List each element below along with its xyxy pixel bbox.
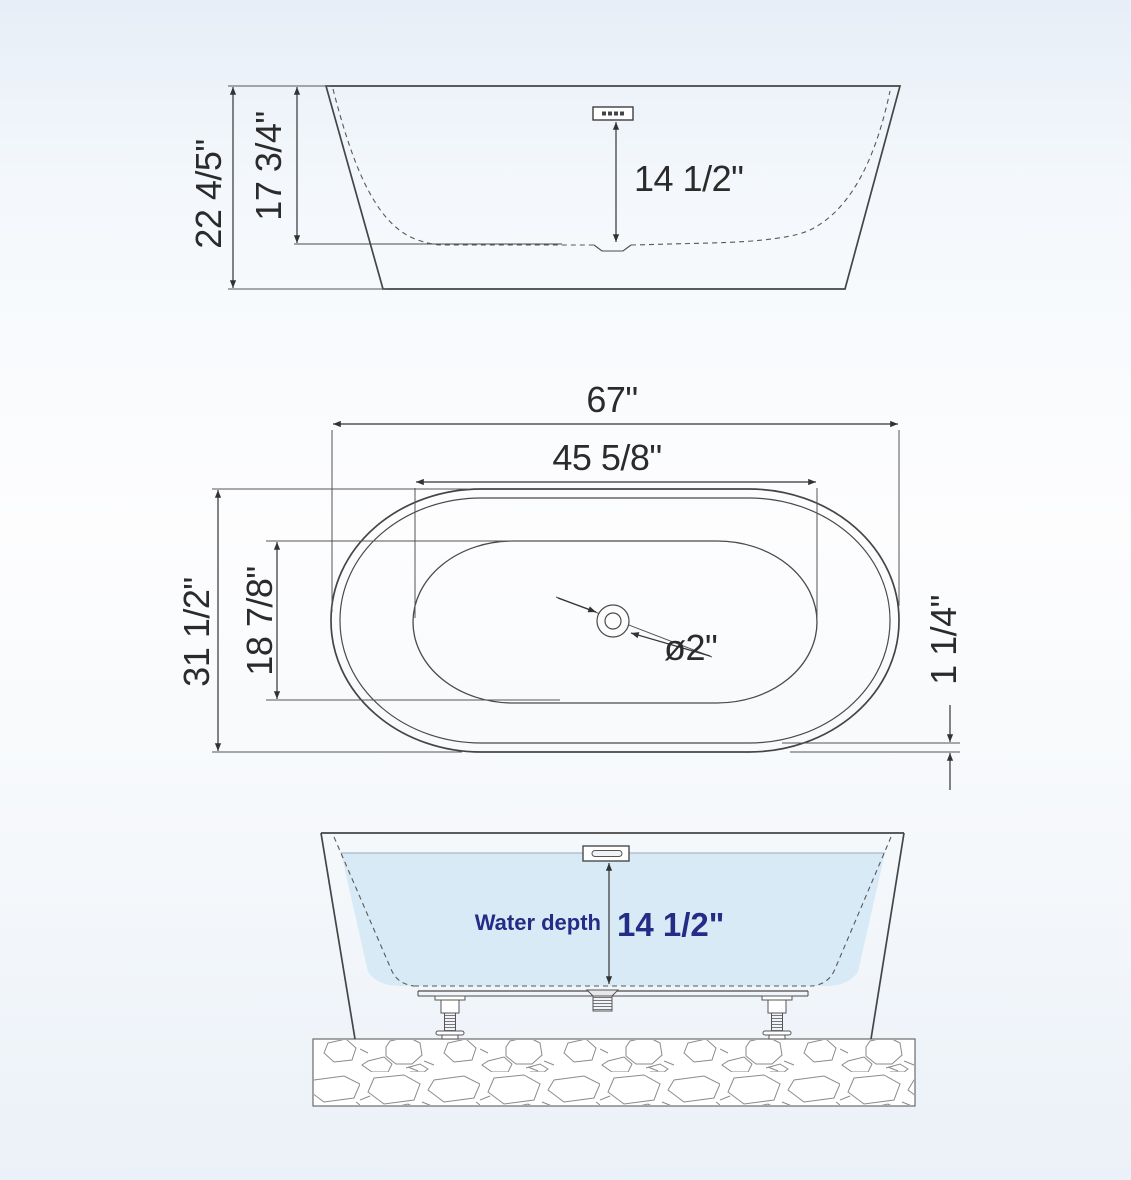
overflow-fitting-icon	[593, 107, 633, 120]
dim-label-interior-depth: 17 3/4"	[248, 111, 289, 220]
overflow-slot-icon	[592, 851, 622, 857]
technical-drawing-canvas: 22 4/5" 17 3/4" 14 1/2" ø2" 67" 45 5/8" …	[0, 0, 1131, 1180]
dim-label-drain-diameter: ø2"	[664, 627, 717, 668]
water-depth-label: Water depth	[475, 910, 601, 935]
bathtub-dimension-drawing: 22 4/5" 17 3/4" 14 1/2" ø2" 67" 45 5/8" …	[0, 0, 1131, 1180]
dim-label-rim-thickness: 1 1/4"	[923, 595, 964, 685]
floor-mosaic-pattern	[314, 1040, 914, 1105]
dim-label-overall-height: 22 4/5"	[188, 139, 229, 248]
drain-leader-arrow	[558, 598, 596, 612]
plan-view: ø2" 67" 45 5/8" 31 1/2" 18 7/8" 1 1/4"	[176, 379, 964, 790]
drain-outer-circle-icon	[597, 605, 629, 637]
drain-recess	[594, 245, 631, 251]
section-view: Water depth 14 1/2"	[313, 833, 915, 1106]
adjustable-foot-left	[435, 996, 465, 1039]
dim-label-overall-width: 31 1/2"	[176, 577, 217, 686]
dim-label-interior-width: 18 7/8"	[239, 566, 280, 675]
dim-label-overall-length: 67"	[586, 379, 637, 420]
dim-label-interior-length: 45 5/8"	[552, 437, 661, 478]
basin-profile-left-dashed	[333, 89, 594, 245]
drain-fitting-icon	[587, 990, 618, 1011]
dim-label-overflow-height: 14 1/2"	[634, 158, 743, 199]
water-fill	[341, 853, 885, 986]
side-view: 22 4/5" 17 3/4" 14 1/2"	[188, 86, 900, 289]
adjustable-foot-right	[762, 996, 792, 1039]
water-depth-value: 14 1/2"	[617, 906, 724, 943]
